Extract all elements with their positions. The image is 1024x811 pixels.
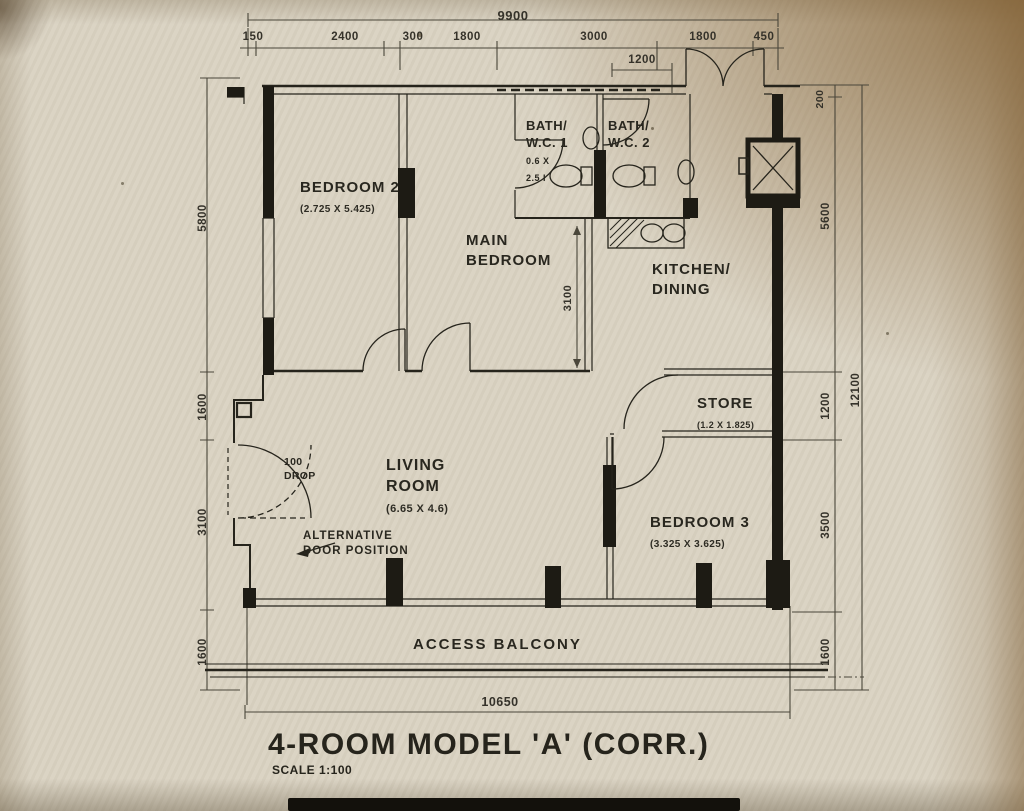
label-store: STORE (1.2 X 1.825) — [697, 394, 754, 433]
dim-left-5800: 5800 — [197, 204, 209, 232]
plan-title: 4-ROOM MODEL 'A' (CORR.) — [268, 728, 709, 762]
label-bath-wc2: BATH/ W.C. 2 — [608, 118, 650, 152]
scan-speck — [651, 127, 654, 130]
dim-top-total: 9900 — [498, 8, 529, 23]
label-alternative-door: ALTERNATIVE DOOR POSITION — [303, 529, 409, 559]
label-living-room: LIVING ROOM (6.65 X 4.6) — [386, 456, 448, 518]
dim-top-seg-1800: 1800 — [453, 31, 481, 43]
label-bath-wc1: BATH/ W.C. 1 0.6 X 2.5 I — [526, 118, 568, 186]
service-duct — [739, 140, 800, 208]
floorplan-linework — [0, 0, 1024, 811]
dim-main-bedroom-3100: 3100 — [562, 285, 574, 311]
dim-right-5600: 5600 — [820, 202, 832, 230]
scanned-floorplan-page: 9900 150 2400 300 1800 3000 1800 450 120… — [0, 0, 1024, 811]
dim-balcony-10650: 10650 — [481, 695, 518, 709]
dim-top-seg-3000: 3000 — [580, 31, 608, 43]
label-kitchen-dining: KITCHEN/ DINING — [652, 260, 731, 299]
dim-right-total: 12100 — [850, 373, 862, 407]
label-bedroom3: BEDROOM 3 (3.325 X 3.625) — [650, 513, 750, 552]
walls — [205, 86, 828, 677]
dim-entrance-window: 1200 — [628, 54, 656, 66]
dim-right-1200: 1200 — [820, 392, 832, 420]
label-100-drop: 100 DROP — [284, 455, 316, 483]
dim-right-1600: 1600 — [820, 638, 832, 666]
scan-speck — [418, 33, 422, 37]
label-access-balcony: ACCESS BALCONY — [413, 635, 582, 655]
dim-right-3500: 3500 — [820, 511, 832, 539]
dim-top-seg-150: 150 — [243, 31, 264, 43]
dim-wall-200: 200 — [814, 89, 826, 108]
dim-top-seg-1800b: 1800 — [689, 31, 717, 43]
dim-left-1600: 1600 — [197, 393, 209, 421]
dim-top-seg-450: 450 — [754, 31, 775, 43]
label-bedroom2: BEDROOM 2 (2.725 X 5.425) — [300, 178, 400, 217]
dim-left-1600b: 1600 — [197, 638, 209, 666]
dim-top-seg-2400: 2400 — [331, 31, 359, 43]
scan-edge-bar — [288, 798, 740, 811]
label-main-bedroom: MAIN BEDROOM — [466, 231, 551, 270]
plan-scale: SCALE 1:100 — [272, 763, 352, 777]
dim-left-3100: 3100 — [197, 508, 209, 536]
scan-speck — [886, 332, 889, 335]
scan-speck — [121, 182, 124, 185]
